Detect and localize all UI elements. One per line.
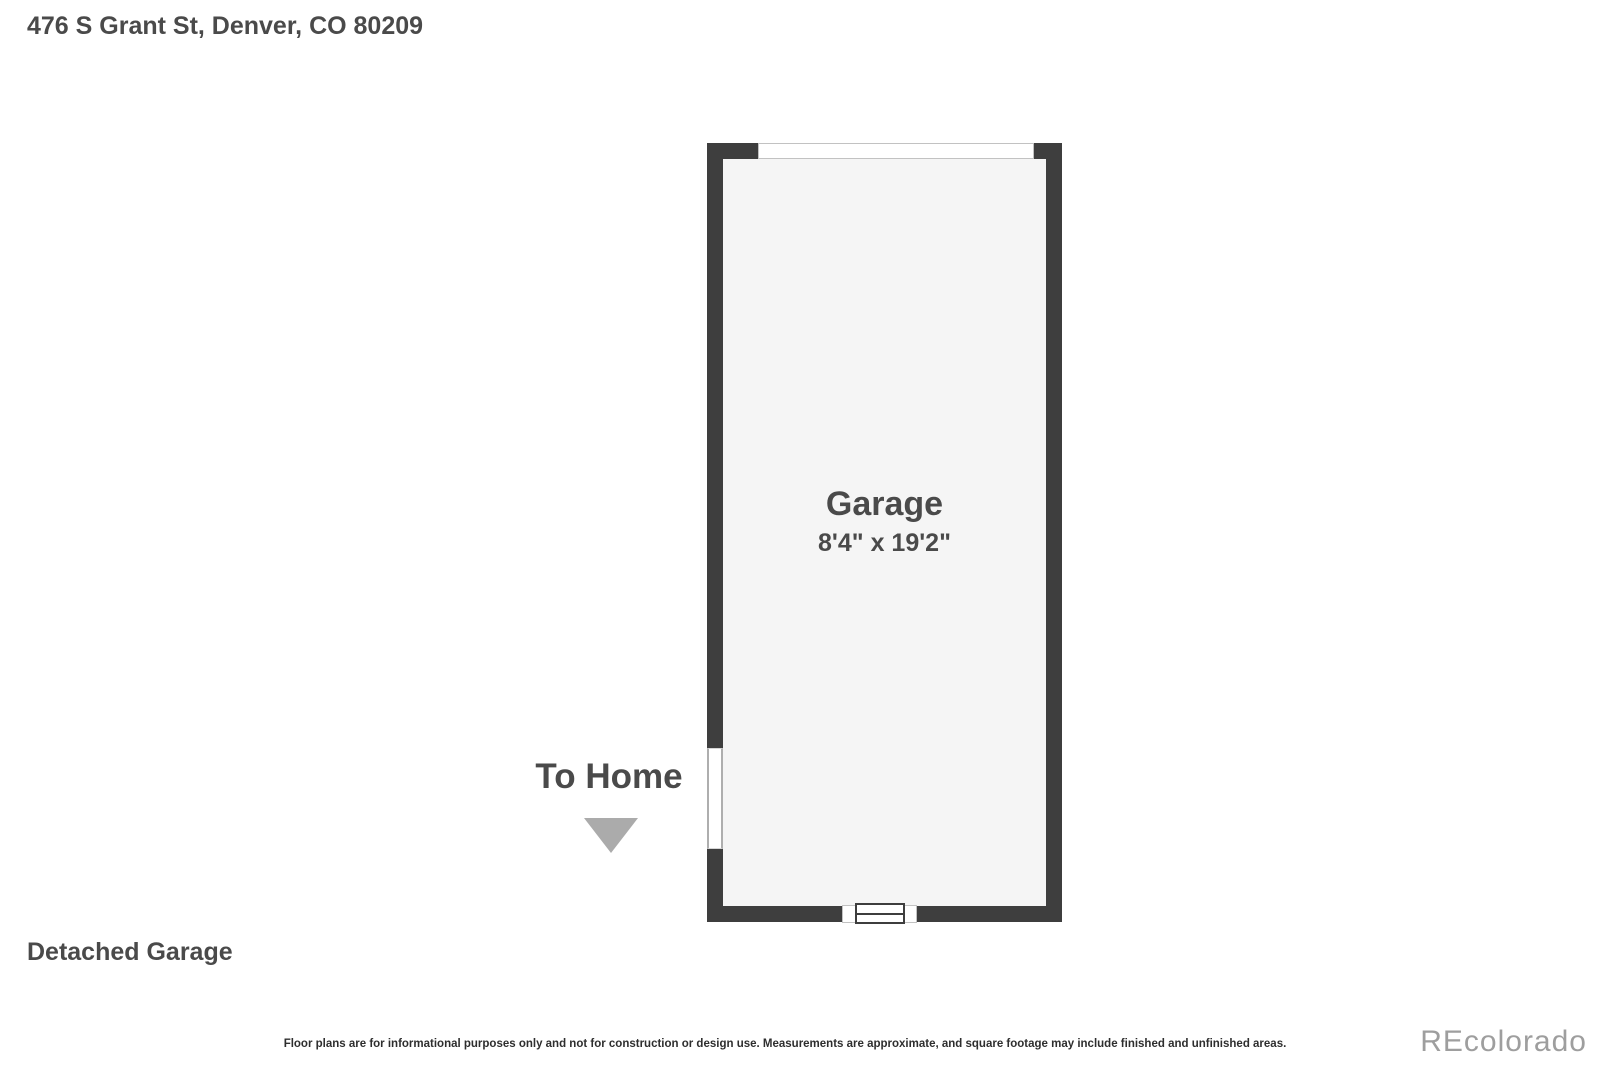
room-label: Garage 8'4" x 19'2" bbox=[723, 485, 1046, 558]
garage-door-opening bbox=[758, 143, 1034, 159]
window-icon bbox=[855, 903, 905, 924]
page-title-address: 476 S Grant St, Denver, CO 80209 bbox=[27, 12, 423, 41]
disclaimer-text: Floor plans are for informational purpos… bbox=[0, 1038, 1570, 1050]
wall-right bbox=[1046, 143, 1062, 922]
room-dimensions: 8'4" x 19'2" bbox=[723, 529, 1046, 558]
to-home-arrow-icon bbox=[584, 818, 638, 853]
wall-top-right-segment bbox=[1034, 143, 1062, 159]
room-name: Garage bbox=[723, 485, 1046, 524]
wall-top-left-segment bbox=[707, 143, 758, 159]
window-mullion bbox=[857, 913, 903, 915]
to-home-label: To Home bbox=[535, 757, 682, 797]
floor-plan: Garage 8'4" x 19'2" bbox=[707, 143, 1062, 922]
recolorado-watermark: REcolorado bbox=[1420, 1025, 1587, 1059]
plan-title: Detached Garage bbox=[27, 938, 233, 967]
door-to-home-opening bbox=[707, 748, 723, 849]
